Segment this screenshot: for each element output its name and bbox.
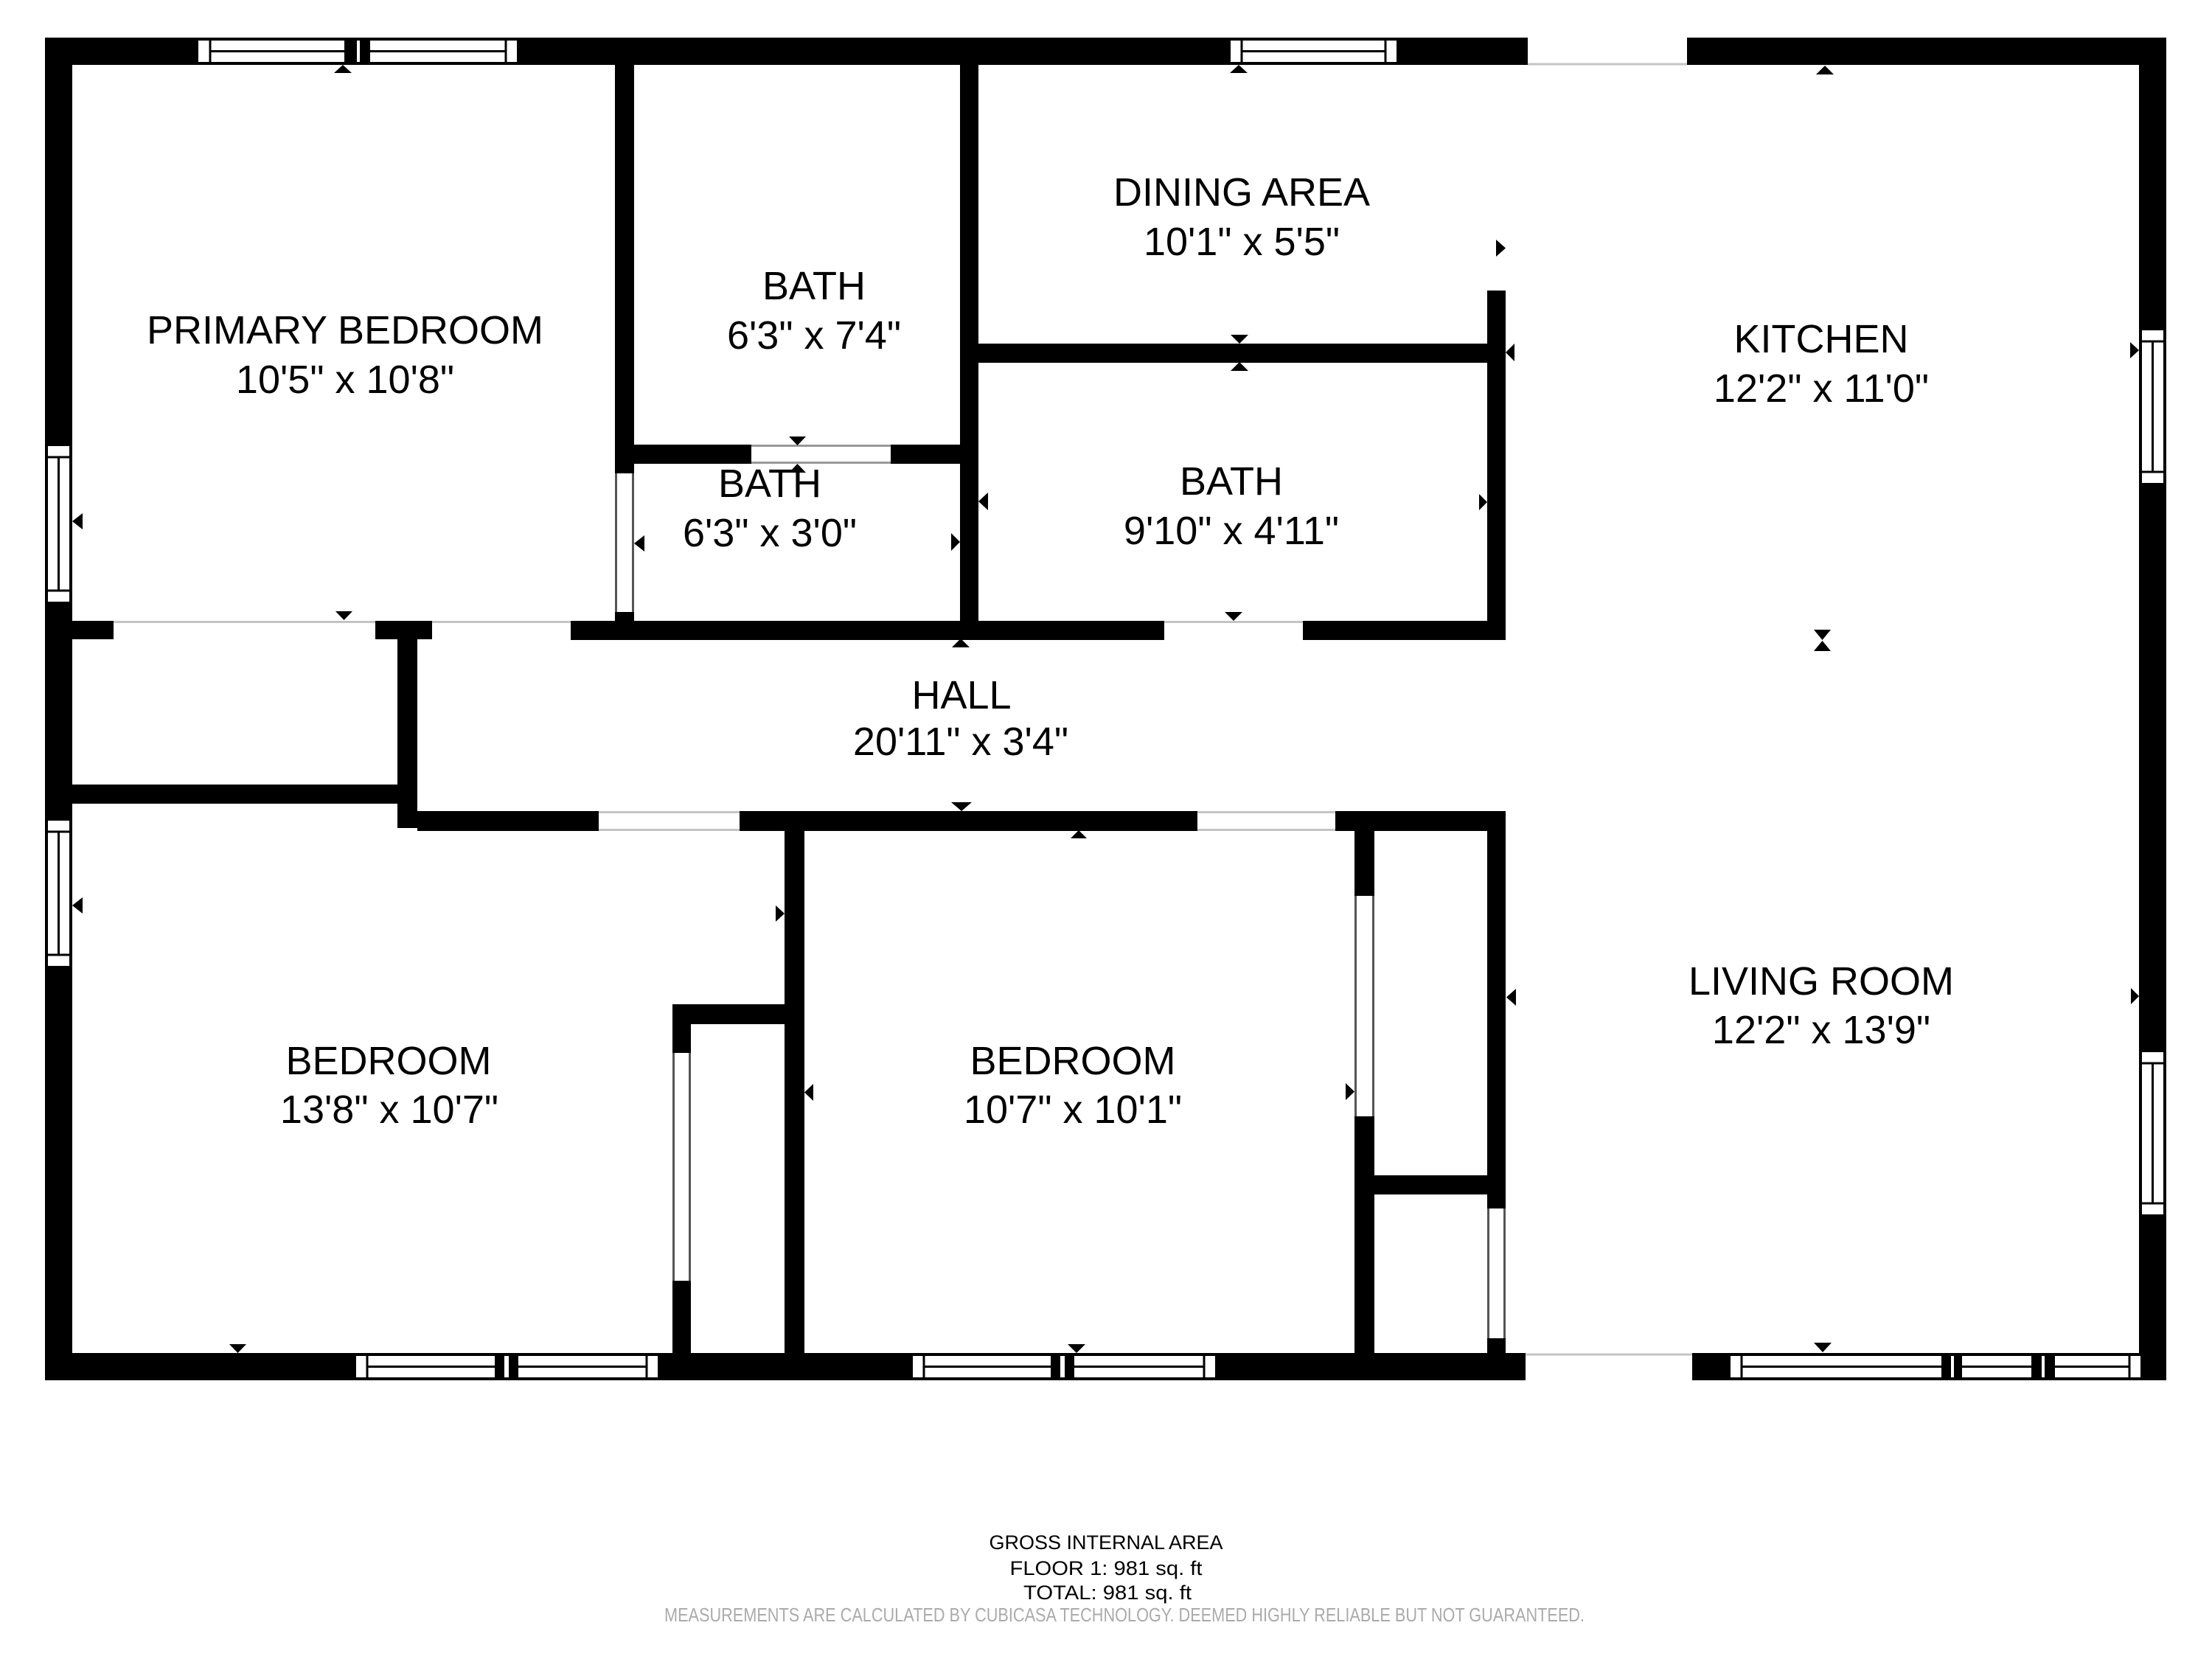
svg-text:KITCHEN: KITCHEN xyxy=(1733,317,1908,361)
svg-text:10'1" x 5'5": 10'1" x 5'5" xyxy=(1144,220,1340,264)
svg-text:BEDROOM: BEDROOM xyxy=(970,1039,1175,1083)
svg-text:TOTAL: 981 sq. ft: TOTAL: 981 sq. ft xyxy=(1023,1582,1192,1604)
svg-text:MEASUREMENTS ARE CALCULATED BY: MEASUREMENTS ARE CALCULATED BY CUBICASA … xyxy=(664,1604,1585,1626)
svg-text:20'11" x 3'4": 20'11" x 3'4" xyxy=(853,720,1068,764)
svg-text:DINING AREA: DINING AREA xyxy=(1113,170,1370,215)
svg-text:13'8" x 10'7": 13'8" x 10'7" xyxy=(280,1088,498,1132)
svg-text:FLOOR 1: 981 sq. ft: FLOOR 1: 981 sq. ft xyxy=(1010,1557,1203,1579)
svg-text:BATH: BATH xyxy=(762,264,866,308)
svg-text:6'3" x 7'4": 6'3" x 7'4" xyxy=(727,313,901,358)
svg-text:10'7" x 10'1": 10'7" x 10'1" xyxy=(964,1088,1182,1132)
svg-text:GROSS INTERNAL AREA: GROSS INTERNAL AREA xyxy=(989,1531,1222,1554)
svg-text:HALL: HALL xyxy=(911,673,1011,717)
svg-text:BATH: BATH xyxy=(718,462,821,506)
svg-text:12'2" x 11'0": 12'2" x 11'0" xyxy=(1714,366,1929,411)
svg-text:9'10" x 4'11": 9'10" x 4'11" xyxy=(1124,509,1339,553)
svg-text:10'5" x 10'8": 10'5" x 10'8" xyxy=(236,358,454,402)
svg-text:6'3" x 3'0": 6'3" x 3'0" xyxy=(683,511,857,555)
svg-text:LIVING ROOM: LIVING ROOM xyxy=(1688,959,1954,1004)
svg-text:BEDROOM: BEDROOM xyxy=(285,1039,491,1083)
svg-text:12'2" x 13'9": 12'2" x 13'9" xyxy=(1712,1008,1930,1052)
svg-text:PRIMARY BEDROOM: PRIMARY BEDROOM xyxy=(147,308,543,352)
svg-text:BATH: BATH xyxy=(1180,459,1283,504)
